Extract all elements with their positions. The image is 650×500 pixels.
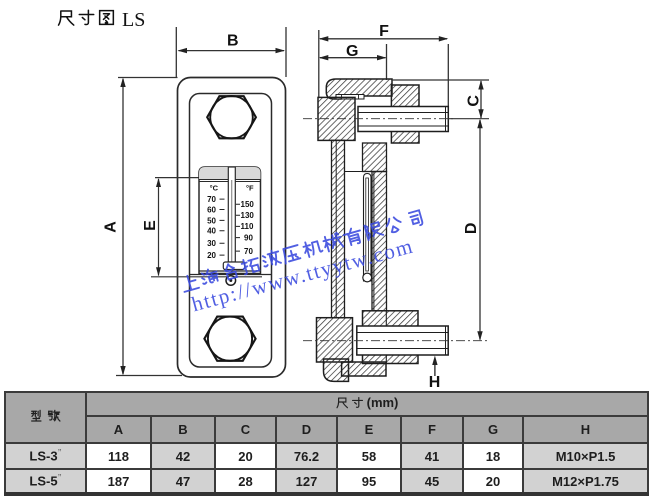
svg-text:50: 50 [207,216,216,225]
svg-text:D: D [463,223,480,235]
svg-text:70: 70 [244,247,253,256]
svg-text:150: 150 [241,200,255,209]
svg-text:110: 110 [241,222,254,231]
svg-text:G: G [346,43,358,60]
svg-text:30: 30 [207,239,216,248]
svg-text:°C: °C [210,184,219,193]
svg-text:70: 70 [207,195,216,204]
svg-text:F: F [379,23,389,40]
svg-text:E: E [142,220,159,231]
svg-text:60: 60 [207,206,216,215]
svg-text:20: 20 [207,251,216,260]
svg-text:A: A [102,221,119,233]
svg-text:H: H [429,374,441,391]
svg-text:130: 130 [241,211,255,220]
svg-text:90: 90 [244,233,253,242]
svg-text:C: C [465,95,482,107]
svg-text:°F: °F [246,184,254,193]
svg-text:B: B [227,33,239,50]
svg-text:40: 40 [207,227,216,236]
svg-text:LS: LS [122,9,145,31]
